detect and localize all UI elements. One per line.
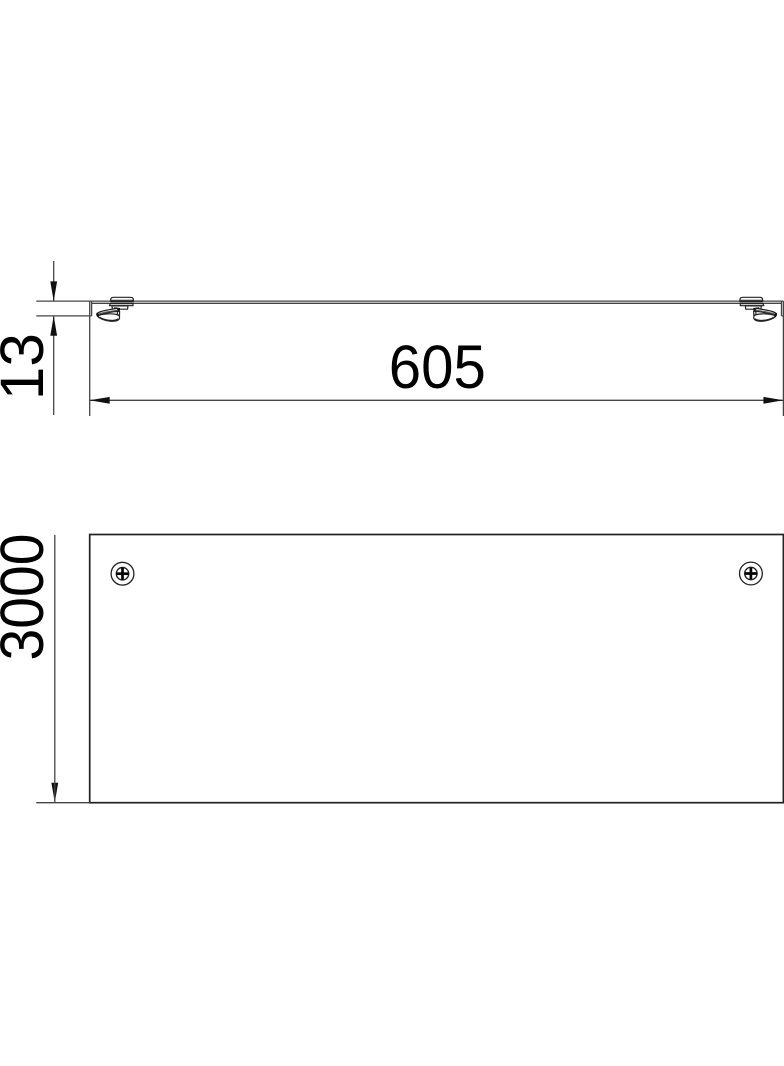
svg-text:3000: 3000 bbox=[0, 534, 56, 661]
svg-text:13: 13 bbox=[0, 333, 56, 400]
svg-text:605: 605 bbox=[389, 333, 486, 401]
